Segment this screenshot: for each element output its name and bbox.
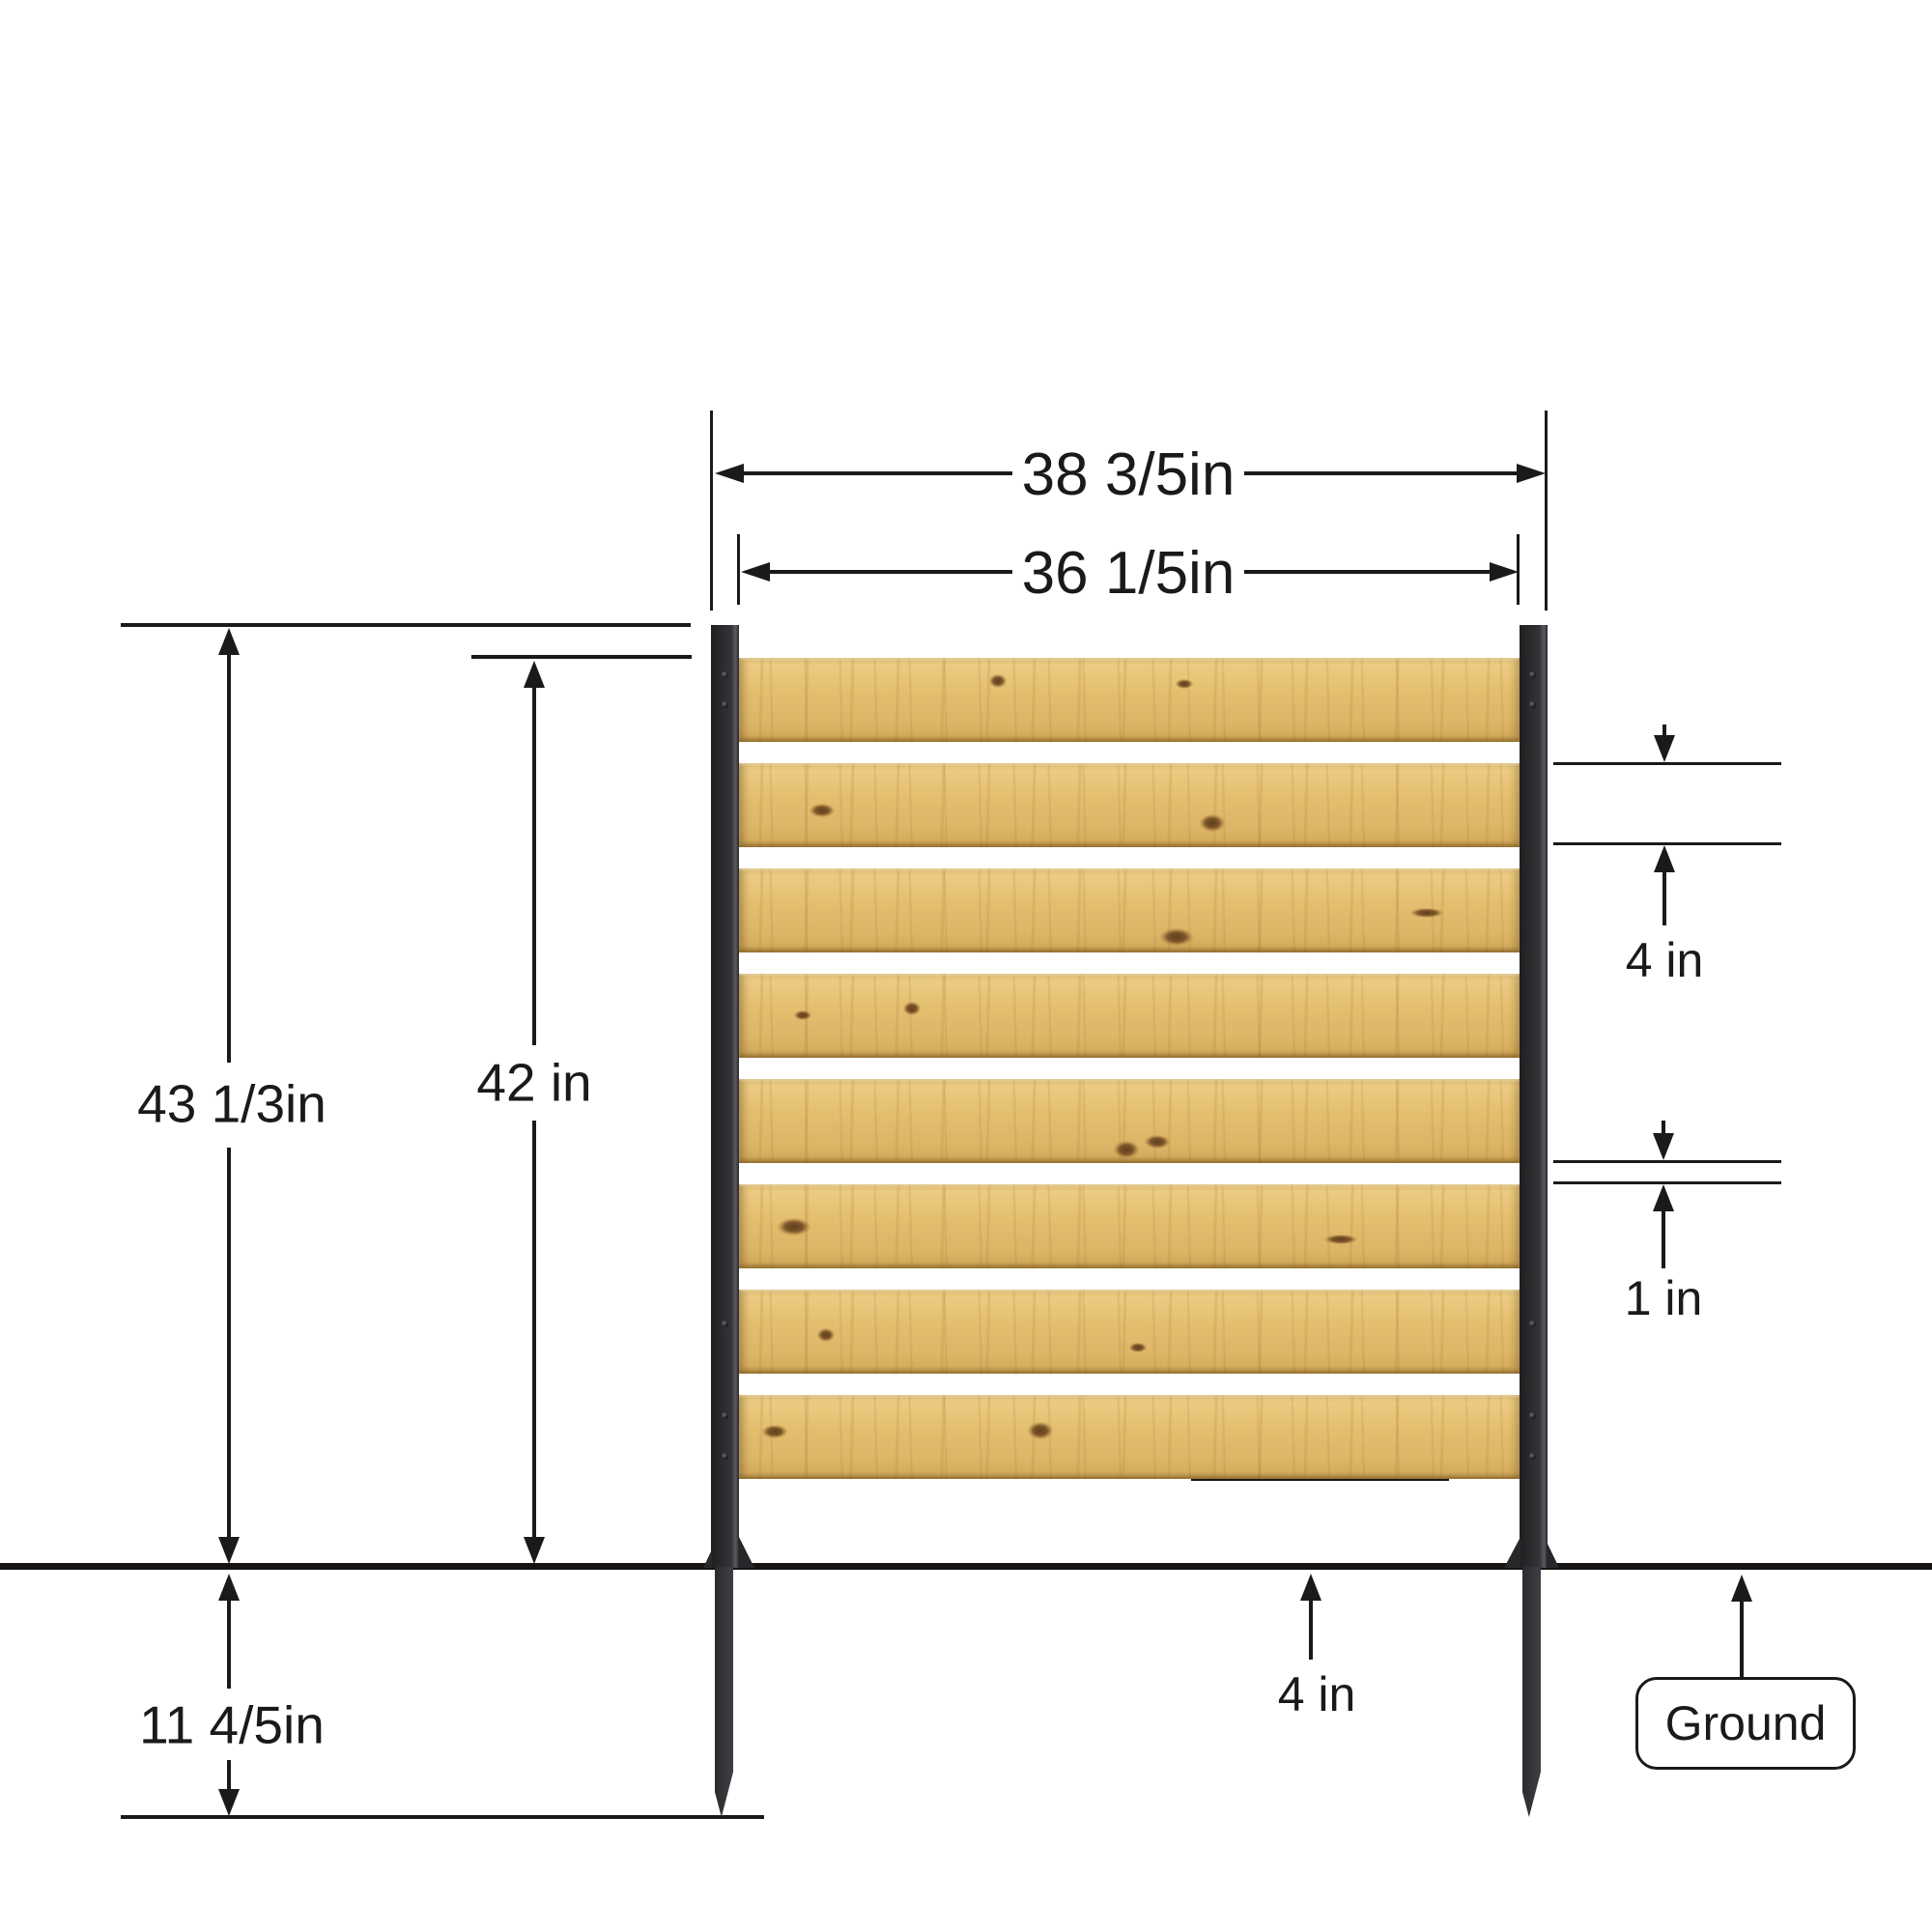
arrowhead-up-icon: [1653, 1184, 1674, 1211]
dimension-line: [532, 688, 536, 1045]
dim-panel-height-label: 42 in: [476, 1057, 591, 1110]
wood-knot: [810, 804, 835, 817]
dimension-line: [532, 1121, 536, 1540]
ground-callout-box: Ground: [1635, 1677, 1856, 1770]
dimension-line: [227, 1148, 231, 1540]
screw-dot: [722, 1412, 728, 1419]
screw-dot: [722, 1453, 728, 1460]
wood-slat: [739, 1290, 1520, 1374]
screw-dot: [722, 1321, 728, 1327]
arrowhead-up-icon: [1654, 845, 1675, 872]
wood-knot: [1129, 1343, 1147, 1352]
wood-knot: [1145, 1135, 1170, 1149]
wood-knot: [903, 1002, 921, 1015]
wood-slat: [739, 763, 1520, 847]
dimension-line: [227, 1601, 231, 1689]
arrowhead-down-icon: [524, 1537, 545, 1564]
wood-slat: [739, 1395, 1520, 1479]
left-post-flange-right: [739, 1537, 754, 1568]
arrowhead-right-icon: [1517, 464, 1546, 483]
right-post-stake: [1522, 1567, 1541, 1817]
tick-line: [121, 623, 691, 627]
dim-total-height-label: 43 1/3in: [137, 1078, 327, 1131]
wood-knot: [1176, 679, 1193, 689]
right-post-flange-left: [1504, 1537, 1520, 1568]
arrowhead-down-icon: [1654, 735, 1675, 762]
screw-dot: [1529, 701, 1536, 708]
dim-slat-gap-label: 1 in: [1625, 1274, 1703, 1322]
arrowhead-up-icon: [524, 661, 545, 688]
wood-slat: [739, 658, 1520, 742]
arrowhead-left-icon: [741, 562, 770, 582]
dim-buried-depth-label: 11 4/5in: [139, 1699, 325, 1752]
screw-dot: [1529, 1453, 1536, 1460]
callout-line: [1740, 1602, 1744, 1677]
wood-knot: [1160, 928, 1193, 946]
wood-slat: [739, 1079, 1520, 1163]
wood-slat: [739, 1184, 1520, 1268]
arrowhead-up-icon: [218, 1574, 240, 1601]
wood-knot: [1114, 1141, 1139, 1158]
dim-inner-width-label: 36 1/5in: [1022, 544, 1236, 604]
screw-dot: [722, 701, 728, 708]
ground-label: Ground: [1665, 1695, 1827, 1751]
wood-knot: [1410, 908, 1443, 918]
dim-outer-width-label: 38 3/5in: [1022, 445, 1236, 505]
dimension-line: [742, 471, 1012, 475]
wood-slat: [739, 974, 1520, 1058]
screw-dot: [1529, 1412, 1536, 1419]
dim-ground-clearance-label: 4 in: [1278, 1670, 1356, 1719]
tick-line: [1553, 1160, 1781, 1163]
dimension-line: [1244, 471, 1519, 475]
arrowhead-down-icon: [218, 1537, 240, 1564]
dimension-line: [1662, 1121, 1665, 1134]
arrowhead-left-icon: [715, 464, 744, 483]
wood-knot: [1200, 814, 1225, 832]
dimension-line: [768, 570, 1012, 574]
tick-line: [471, 655, 692, 659]
wood-knot: [817, 1328, 835, 1342]
wood-knot: [1028, 1422, 1053, 1439]
dimension-line: [1244, 570, 1492, 574]
wood-knot: [778, 1218, 810, 1236]
extension-line: [1545, 411, 1548, 611]
screw-dot: [1529, 1321, 1536, 1327]
dimension-line: [227, 655, 231, 1063]
dimension-line: [227, 1760, 231, 1789]
wood-knot: [794, 1010, 811, 1020]
wood-slat: [739, 868, 1520, 952]
dimension-line: [1662, 1211, 1665, 1268]
left-post: [711, 625, 739, 1568]
wood-knot: [762, 1425, 787, 1438]
extension-line: [710, 411, 713, 611]
arrowhead-up-icon: [1300, 1574, 1321, 1601]
screw-dot: [1529, 671, 1536, 678]
tick-line: [121, 1815, 764, 1819]
screw-dot: [722, 671, 728, 678]
arrowhead-up-icon: [218, 628, 240, 655]
wood-knot: [989, 674, 1007, 688]
ground-line: [0, 1563, 1932, 1570]
tick-line: [1553, 762, 1781, 765]
left-post-stake: [715, 1567, 733, 1817]
right-post: [1520, 625, 1548, 1568]
arrowhead-down-icon: [218, 1789, 240, 1816]
arrowhead-up-icon: [1731, 1575, 1752, 1602]
arrowhead-right-icon: [1490, 562, 1519, 582]
dimension-line: [1662, 872, 1666, 925]
arrowhead-down-icon: [1653, 1133, 1674, 1160]
dim-slat-width-label: 4 in: [1626, 936, 1704, 984]
extension-line: [737, 534, 740, 605]
fence-dimension-diagram: 38 3/5in 36 1/5in 43 1/3in 42 in 11 4/5i…: [0, 0, 1932, 1932]
wood-knot: [1324, 1235, 1357, 1244]
dimension-line: [1309, 1601, 1313, 1660]
